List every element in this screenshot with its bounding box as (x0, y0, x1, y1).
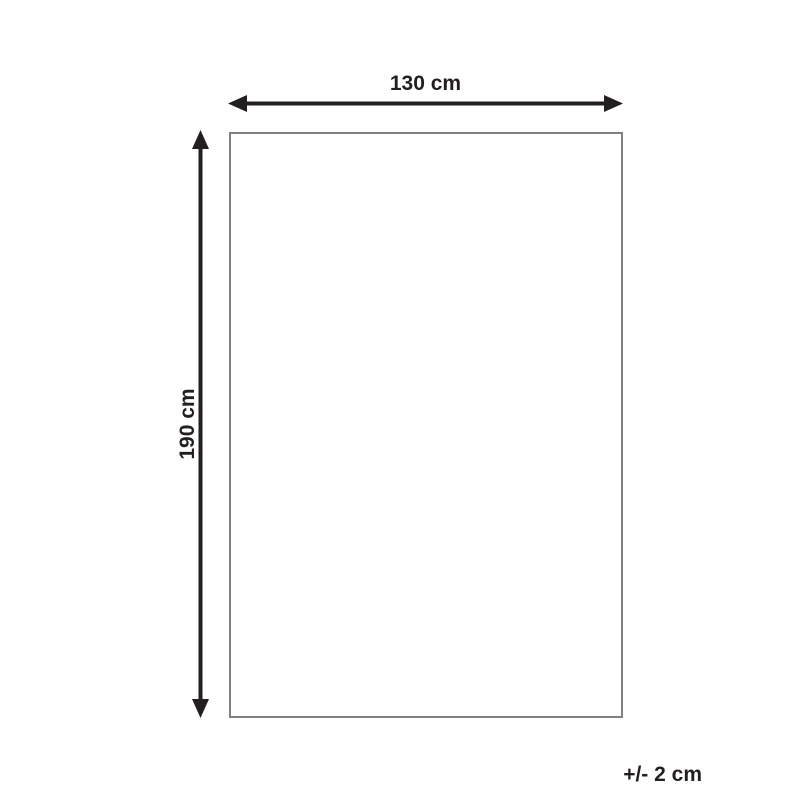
tolerance-label: +/- 2 cm (623, 763, 702, 787)
height-dimension-label: 190 cm (176, 388, 200, 459)
height-arrow-top-head-icon (192, 130, 209, 149)
diagram-graphics (0, 0, 800, 800)
product-outline-rect (230, 133, 622, 717)
height-arrow-bottom-head-icon (192, 699, 209, 718)
width-arrow-left-head-icon (228, 95, 247, 112)
width-arrow (228, 95, 623, 112)
dimension-diagram: 130 cm 190 cm +/- 2 cm (0, 0, 800, 800)
width-arrow-right-head-icon (604, 95, 623, 112)
width-dimension-label: 130 cm (229, 72, 622, 96)
